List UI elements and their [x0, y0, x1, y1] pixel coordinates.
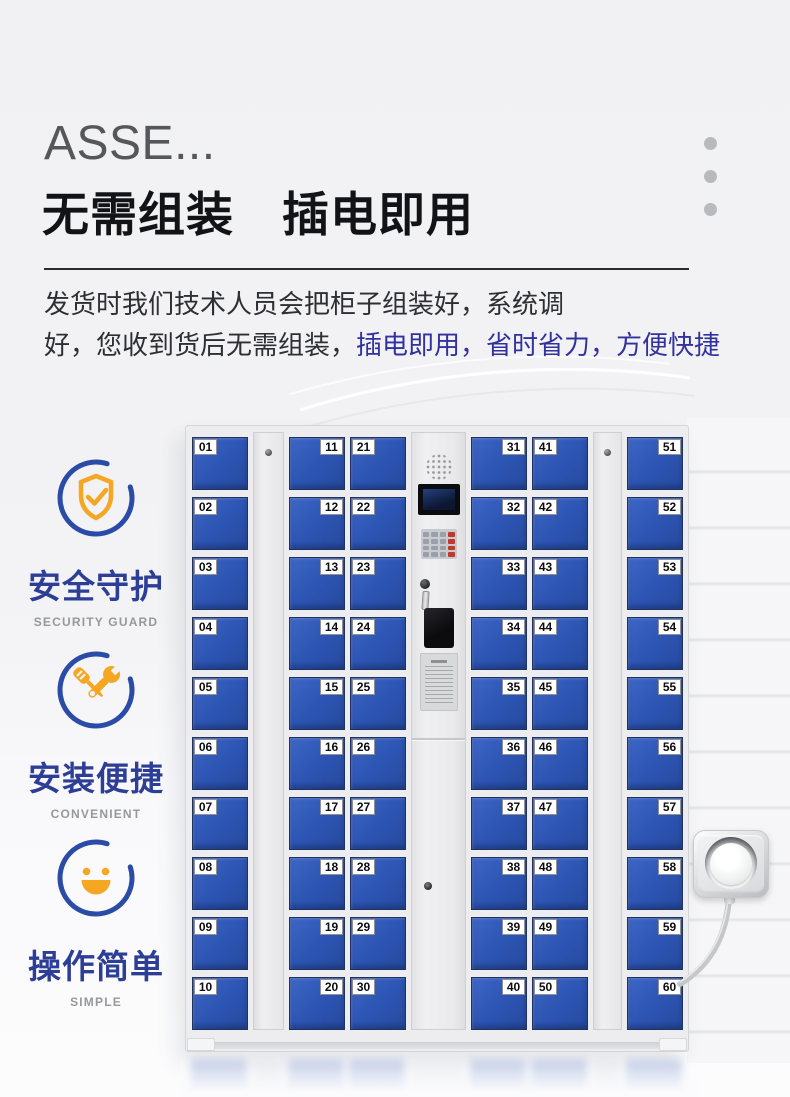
feature-title: 操作简单 [22, 940, 170, 988]
door-number-label: 20 [320, 979, 343, 995]
screw-icon [604, 449, 611, 456]
door-number-label: 18 [320, 859, 343, 875]
locker-door-45: 45 [532, 677, 588, 730]
locker-door-57: 57 [627, 797, 683, 850]
keypad-key [423, 532, 430, 537]
product-detail-page: ASSE... 无需组装 插电即用 发货时我们技术人员会把柜子组装好，系统调 好… [0, 0, 790, 1097]
door-number-label: 51 [658, 439, 681, 455]
door-number-label: 23 [352, 559, 375, 575]
locker-door-54: 54 [627, 617, 683, 670]
cabinet-foot-right [659, 1038, 687, 1051]
speaker-grille-icon [426, 454, 452, 480]
locker-door-32: 32 [471, 497, 527, 550]
keypad-key [423, 539, 430, 544]
door-number-label: 24 [352, 619, 375, 635]
keypad-key [440, 552, 447, 557]
divider-strip-right [593, 432, 622, 1030]
door-number-label: 37 [502, 799, 525, 815]
door-number-label: 48 [534, 859, 557, 875]
door-number-label: 29 [352, 919, 375, 935]
keypad-key [440, 546, 447, 551]
locker-door-26: 26 [350, 737, 406, 790]
feature-title: 安装便捷 [22, 752, 170, 800]
locker-door-49: 49 [532, 917, 588, 970]
keypad [421, 529, 457, 559]
locker-door-07: 07 [192, 797, 248, 850]
power-cable [650, 880, 790, 1000]
shield-check-icon [54, 456, 138, 540]
locker-door-03: 03 [192, 557, 248, 610]
door-number-label: 49 [534, 919, 557, 935]
door-number-label: 04 [194, 619, 217, 635]
door-number-label: 56 [658, 739, 681, 755]
cabinet-grid: 0102030405060708091011121314151617181920… [192, 437, 683, 1030]
door-number-label: 58 [658, 859, 681, 875]
locker-door-37: 37 [471, 797, 527, 850]
door-number-label: 53 [658, 559, 681, 575]
door-number-label: 15 [320, 679, 343, 695]
locker-door-09: 09 [192, 917, 248, 970]
locker-door-10: 10 [192, 977, 248, 1030]
instruction-sticker [420, 653, 458, 711]
screw-icon [265, 449, 272, 456]
keypad-key [423, 546, 430, 551]
intro-line-2-black: 好，您收到货后无需组装， [44, 330, 356, 360]
locker-door-51: 51 [627, 437, 683, 490]
door-number-label: 34 [502, 619, 525, 635]
floor-reflection-fade [180, 1058, 700, 1097]
cabinet-plinth [198, 1042, 676, 1049]
door-number-label: 32 [502, 499, 525, 515]
keypad-key [431, 546, 438, 551]
door-number-label: 33 [502, 559, 525, 575]
door-number-label: 52 [658, 499, 681, 515]
door-number-label: 12 [320, 499, 343, 515]
wrench-screwdriver-icon [54, 648, 138, 732]
locker-door-36: 36 [471, 737, 527, 790]
divider-strip-left [253, 432, 284, 1030]
locker-door-31: 31 [471, 437, 527, 490]
door-number-label: 30 [352, 979, 375, 995]
display-screen [418, 484, 460, 515]
locker-door-17: 17 [289, 797, 345, 850]
power-plug [710, 843, 752, 885]
locker-door-04: 04 [192, 617, 248, 670]
locker-door-46: 46 [532, 737, 588, 790]
door-number-label: 08 [194, 859, 217, 875]
intro-paragraph: 发货时我们技术人员会把柜子组装好，系统调 好，您收到货后无需组装，插电即用，省时… [44, 284, 764, 366]
door-number-label: 43 [534, 559, 557, 575]
keypad-key [431, 552, 438, 557]
door-number-label: 05 [194, 679, 217, 695]
locker-door-08: 08 [192, 857, 248, 910]
feature-security: 安全守护 SECURITY GUARD [22, 456, 170, 629]
door-number-label: 39 [502, 919, 525, 935]
door-number-label: 17 [320, 799, 343, 815]
door-number-label: 19 [320, 919, 343, 935]
locker-door-02: 02 [192, 497, 248, 550]
locker-door-48: 48 [532, 857, 588, 910]
locker-door-01: 01 [192, 437, 248, 490]
door-number-label: 40 [502, 979, 525, 995]
locker-door-44: 44 [532, 617, 588, 670]
locker-door-19: 19 [289, 917, 345, 970]
door-number-label: 55 [658, 679, 681, 695]
door-number-label: 35 [502, 679, 525, 695]
door-number-label: 09 [194, 919, 217, 935]
door-number-label: 41 [534, 439, 557, 455]
door-number-label: 06 [194, 739, 217, 755]
locker-door-34: 34 [471, 617, 527, 670]
locker-door-23: 23 [350, 557, 406, 610]
door-number-label: 01 [194, 439, 217, 455]
locker-door-52: 52 [627, 497, 683, 550]
locker-door-53: 53 [627, 557, 683, 610]
smiley-face-icon [54, 836, 138, 920]
locker-door-05: 05 [192, 677, 248, 730]
locker-door-16: 16 [289, 737, 345, 790]
intro-line-2: 好，您收到货后无需组装，插电即用，省时省力，方便快捷 [44, 325, 764, 366]
door-number-label: 47 [534, 799, 557, 815]
keypad-red-key [448, 532, 455, 537]
locker-cabinet: 0102030405060708091011121314151617181920… [185, 425, 689, 1052]
panel-seam [412, 738, 465, 740]
locker-door-30: 30 [350, 977, 406, 1030]
door-number-label: 21 [352, 439, 375, 455]
door-number-label: 25 [352, 679, 375, 695]
door-number-label: 57 [658, 799, 681, 815]
feature-subtitle: SECURITY GUARD [22, 615, 170, 629]
locker-door-21: 21 [350, 437, 406, 490]
door-number-label: 02 [194, 499, 217, 515]
locker-door-27: 27 [350, 797, 406, 850]
locker-door-33: 33 [471, 557, 527, 610]
keypad-red-key [448, 552, 455, 557]
door-number-label: 11 [320, 439, 343, 455]
locker-door-39: 39 [471, 917, 527, 970]
locker-door-20: 20 [289, 977, 345, 1030]
page-title-zh: 无需组装 插电即用 [42, 176, 474, 245]
locker-door-25: 25 [350, 677, 406, 730]
control-panel [411, 432, 466, 1030]
feature-subtitle: SIMPLE [22, 995, 170, 1009]
door-number-label: 10 [194, 979, 217, 995]
locker-door-41: 41 [532, 437, 588, 490]
door-number-label: 38 [502, 859, 525, 875]
keypad-key [440, 539, 447, 544]
door-number-label: 36 [502, 739, 525, 755]
scanner-window [424, 608, 454, 648]
door-number-label: 54 [658, 619, 681, 635]
door-number-label: 28 [352, 859, 375, 875]
lock-icon [420, 579, 430, 589]
feature-title: 安全守护 [22, 560, 170, 608]
decorative-dots [704, 137, 717, 236]
keypad-red-key [448, 539, 455, 544]
locker-door-06: 06 [192, 737, 248, 790]
keyhole-icon [424, 882, 432, 890]
locker-door-11: 11 [289, 437, 345, 490]
locker-door-22: 22 [350, 497, 406, 550]
locker-door-14: 14 [289, 617, 345, 670]
feature-operation: 操作简单 SIMPLE [22, 836, 170, 1009]
keypad-key [431, 539, 438, 544]
keypad-key [431, 532, 438, 537]
door-number-label: 45 [534, 679, 557, 695]
door-number-label: 07 [194, 799, 217, 815]
locker-door-35: 35 [471, 677, 527, 730]
door-number-label: 16 [320, 739, 343, 755]
intro-line-1: 发货时我们技术人员会把柜子组装好，系统调 [44, 284, 764, 325]
keypad-key [440, 532, 447, 537]
locker-door-13: 13 [289, 557, 345, 610]
door-number-label: 46 [534, 739, 557, 755]
locker-door-24: 24 [350, 617, 406, 670]
locker-door-18: 18 [289, 857, 345, 910]
locker-door-47: 47 [532, 797, 588, 850]
wall-socket [693, 830, 769, 898]
socket-recess [705, 837, 757, 889]
keypad-key [423, 552, 430, 557]
locker-door-12: 12 [289, 497, 345, 550]
page-title-en: ASSE... [44, 116, 216, 171]
door-number-label: 44 [534, 619, 557, 635]
door-number-label: 22 [352, 499, 375, 515]
feature-installation: 安装便捷 CONVENIENT [22, 648, 170, 821]
door-number-label: 14 [320, 619, 343, 635]
intro-line-2-highlight: 插电即用，省时省力，方便快捷 [356, 330, 720, 360]
locker-door-42: 42 [532, 497, 588, 550]
door-number-label: 27 [352, 799, 375, 815]
locker-door-40: 40 [471, 977, 527, 1030]
divider-line [44, 268, 689, 270]
feature-subtitle: CONVENIENT [22, 807, 170, 821]
locker-door-56: 56 [627, 737, 683, 790]
locker-door-50: 50 [532, 977, 588, 1030]
door-number-label: 13 [320, 559, 343, 575]
door-number-label: 03 [194, 559, 217, 575]
cabinet-foot-left [187, 1038, 215, 1051]
locker-door-43: 43 [532, 557, 588, 610]
locker-door-15: 15 [289, 677, 345, 730]
door-number-label: 26 [352, 739, 375, 755]
keypad-red-key [448, 546, 455, 551]
locker-door-38: 38 [471, 857, 527, 910]
door-number-label: 50 [534, 979, 557, 995]
locker-door-28: 28 [350, 857, 406, 910]
locker-door-29: 29 [350, 917, 406, 970]
locker-door-55: 55 [627, 677, 683, 730]
door-number-label: 42 [534, 499, 557, 515]
door-number-label: 31 [502, 439, 525, 455]
